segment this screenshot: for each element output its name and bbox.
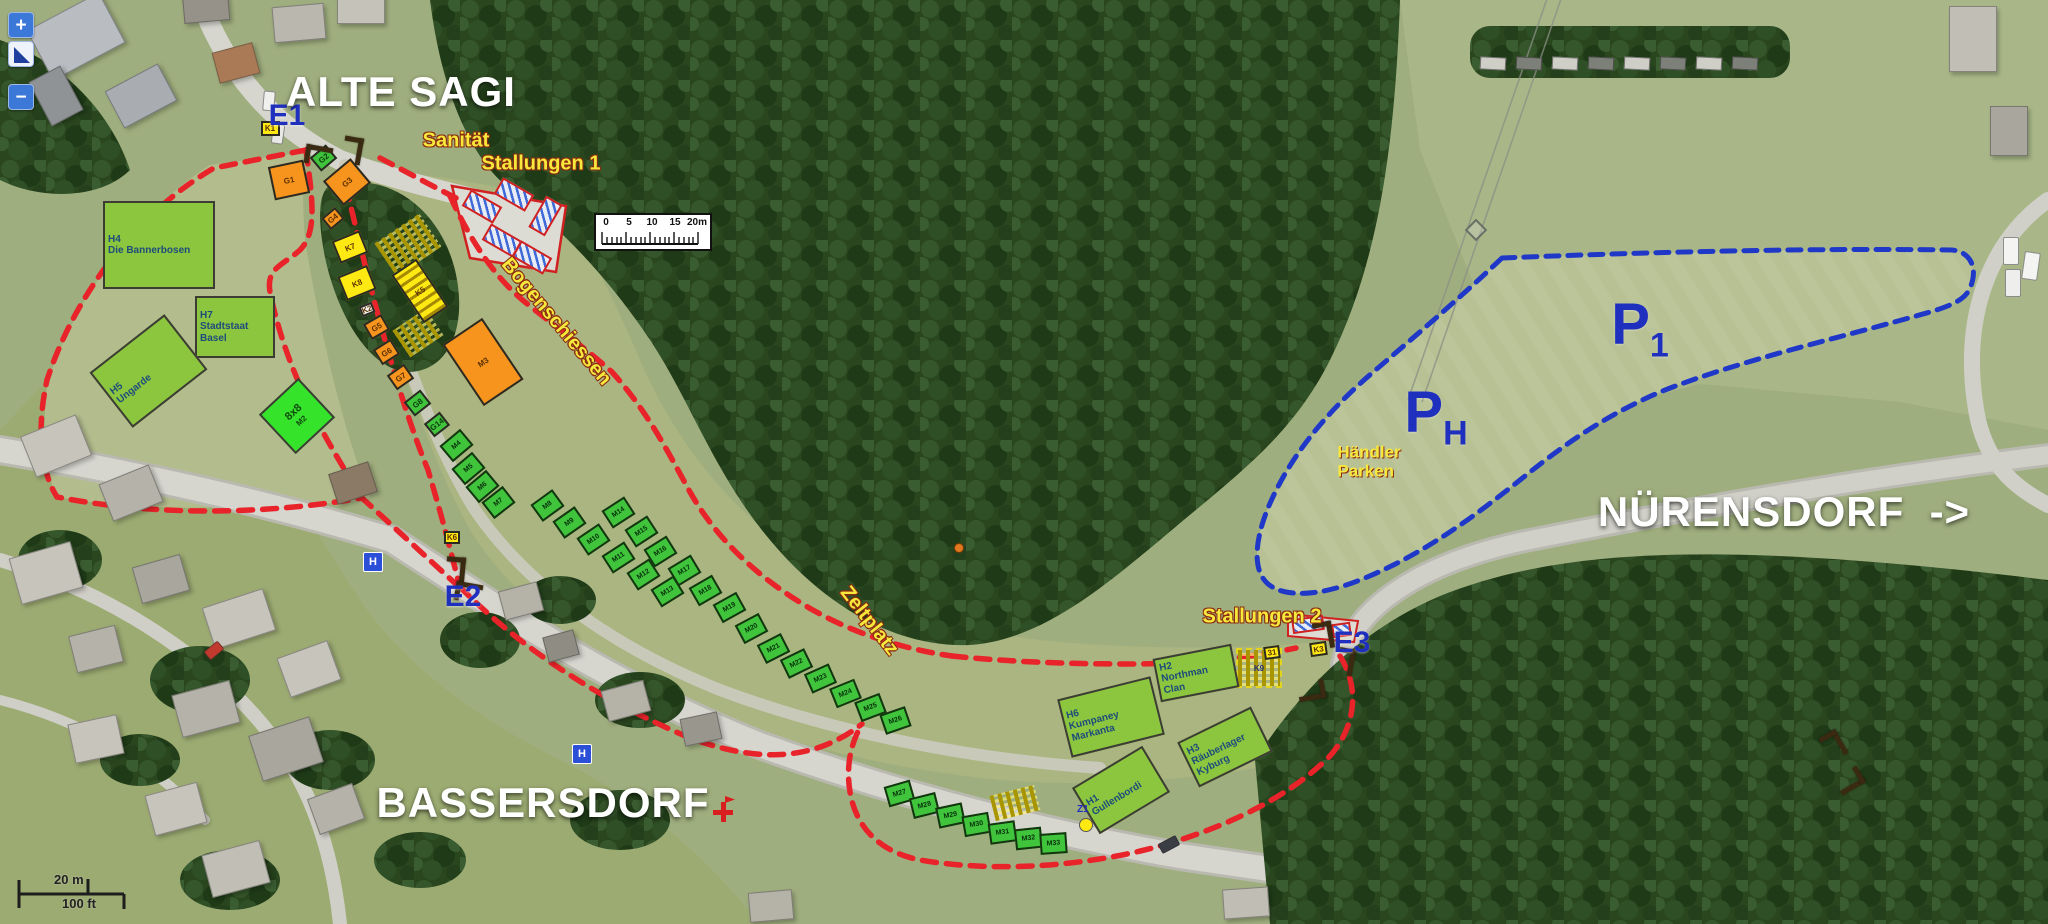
market-stall-label: M19 [721,601,736,614]
building [171,680,240,738]
market-stall-label: M13 [659,584,674,597]
entrance-barrier-icon [1819,729,1849,762]
scale-tick-label: 5 [626,217,632,228]
bus-stop-icon: H [572,744,592,764]
place-label-n-rensdorf-: NÜRENSDORF -> [1598,488,1970,536]
building [248,716,324,781]
building [182,0,231,24]
stand-label: K8 [351,277,364,289]
stand-G5: G5 [362,314,389,340]
entrance-label-e2: E2 [445,580,482,614]
building [276,640,341,698]
market-stall-label: M24 [837,687,852,699]
bus-stop-icon: H [363,552,383,572]
market-stall-label: M5 [462,462,474,474]
building [328,461,378,504]
market-stall-label: M7 [492,496,504,508]
power-pylon [1465,219,1488,242]
stand-M3: M3 [442,318,523,406]
car [2021,251,2041,281]
stand-label: K6 [447,533,457,542]
market-stall-M11: M11 [601,541,635,573]
stand-label: G7 [393,370,407,383]
map-canvas[interactable]: K9K1G1G2G3G4K7K8K2G5G6G7G8G14K5M3K631K3M… [0,0,2048,924]
parking-label-p1: P1 [1611,291,1669,366]
market-stall-label: M18 [697,584,712,597]
stand-K5: K5 [391,259,448,324]
scale-tick-label: 20m [687,217,707,228]
market-stall-label: M33 [1046,839,1060,847]
pan-extent-icon [14,47,30,63]
market-stall-label: M8 [541,499,553,510]
market-stall-M33: M33 [1039,832,1067,855]
stand-label: 31 [1267,647,1277,657]
market-stall-M29: M29 [935,802,966,828]
stand-label: K2 [361,303,374,315]
building [201,840,270,898]
market-stall-label: M32 [1021,834,1035,842]
stand-label: K5 [413,284,427,297]
market-stall-label: M17 [676,563,691,576]
stand-G4: G4 [321,206,344,229]
scale-bar-ruler [600,230,706,248]
building [20,414,92,477]
camp-name: Stadtstaat Basel [200,321,270,344]
zoom-out-button[interactable]: − [8,84,34,110]
building [144,782,207,837]
building [132,554,191,604]
building [542,629,580,662]
red-cross-marker [713,802,733,822]
camp-id: H7 [200,310,213,322]
stand-G14: G14 [424,411,450,437]
site-label-sanität: Sanität [423,130,490,153]
building [9,541,84,605]
market-stall-label: M29 [943,810,958,820]
stand-label: G6 [379,345,393,358]
stable-box [528,196,562,237]
market-stall-label: M31 [995,828,1009,837]
building [28,65,83,126]
stand-label: G5 [369,320,383,333]
bench-label: K9 [1254,664,1264,673]
market-stall-label: M11 [611,550,626,563]
building [105,63,178,128]
pan-extent-button[interactable] [8,41,34,67]
stand-label: G8 [410,396,424,410]
stand-label: M3 [476,355,490,369]
camp-H2: H2Northman Clan [1153,644,1240,702]
market-stall-M31: M31 [987,820,1017,845]
market-stall-label: M23 [812,672,827,684]
building [601,680,652,722]
stand-label: G4 [326,211,340,225]
building [67,714,124,764]
building [202,588,276,650]
site-label-stallungen-2: Stallungen 2 [1203,606,1322,629]
z-marker [1079,818,1093,832]
building [212,42,261,84]
entrance-barrier-icon [1833,766,1866,796]
camp-name: Die Bannerbosen [108,245,190,257]
site-label-stallungen-1: Stallungen 1 [482,153,601,176]
market-stall-M20: M20 [734,612,768,643]
stand-31: 31 [1263,644,1281,659]
building [748,889,794,923]
building [272,3,327,43]
scale-tick-label: 0 [603,217,609,228]
camp-H3: H3Räuberlager Kyburg [1177,707,1273,788]
camp-id: H4 [108,234,121,246]
stand-label: K7 [344,241,357,253]
horse-trailer [1480,56,1507,70]
market-stall-M30: M30 [961,811,991,836]
stand-G1: G1 [268,160,310,201]
market-stall-label: M20 [743,622,758,635]
z-marker-label: Z1 [1077,804,1089,815]
map-zoom-control: + − [8,12,34,110]
camp-name: Kumpaney Markanta [1068,701,1157,744]
market-stall-label: M30 [969,819,984,828]
scale-imperial-label: 100 ft [62,896,96,911]
stand-K8: K8 [337,265,376,301]
plan-overlay: K9K1G1G2G3G4K7K8K2G5G6G7G8G14K5M3K631K3M… [0,0,2048,924]
horse-trailer [1552,56,1579,70]
market-stall-label: M25 [862,701,877,712]
market-stall-label: M15 [633,524,648,537]
camp-H6: H6Kumpaney Markanta [1057,676,1165,757]
entrance-barrier-icon [1297,679,1327,702]
building [1222,886,1270,919]
building [498,581,544,620]
building [1949,6,1997,72]
camp-H5: H5Ungarde [89,314,207,428]
market-stall-label: M16 [652,544,667,557]
car [1158,834,1181,853]
building [337,0,385,24]
haendler-parken-label: Händler Parken [1337,443,1400,480]
parking-label-subscript: 1 [1650,326,1669,364]
place-label-bassersdorf: BASSERSDORF [376,779,709,827]
horse-trailer [1732,56,1759,70]
stand-G8: G8 [403,389,431,416]
market-stall-label: M10 [585,532,600,545]
entrance-barrier-icon [341,136,364,166]
market-stall-M14: M14 [601,496,635,528]
car [2003,237,2019,265]
horse-trailer [1696,56,1723,70]
market-stall-M32: M32 [1013,826,1042,850]
market-stall-label: M6 [476,480,488,492]
market-stall-label: M14 [610,505,625,518]
entrance-barrier-icon [304,144,334,167]
market-stall-label: M12 [635,567,650,580]
market-stall-label: M9 [563,516,575,527]
camp-name: Räuberlager Kyburg [1190,726,1265,778]
market-stall-label: M27 [891,788,906,798]
zoom-in-button[interactable]: + [8,12,34,38]
stand-G6: G6 [372,339,399,365]
market-stall-label: M4 [450,439,462,451]
market-stall-M10: M10 [576,523,610,556]
stand-G7: G7 [386,364,414,391]
horse-trailer [1588,56,1615,70]
camp-H4: H4Die Bannerbosen [103,201,215,289]
camp-H7: H7Stadtstaat Basel [195,296,275,358]
stand-K7: K7 [332,230,369,263]
stand-label: G1 [283,174,295,185]
scale-tick-label: 10 [646,217,657,228]
stand-K2: K2 [358,301,375,316]
building [1990,106,2028,156]
building [680,711,723,746]
stand-K6: K6 [444,531,460,544]
horse-trailer [1660,56,1687,70]
market-stall-label: M28 [917,800,932,810]
market-stall-label: M21 [765,642,780,654]
stand-label: G14 [428,416,445,432]
building [307,783,365,835]
market-stall-M19: M19 [712,591,746,622]
camp-8x8: 8x8M2 [259,378,335,454]
scale-metric-label: 20 m [54,872,84,887]
horse-trailer [1624,56,1651,70]
scale-bar-numbers: 0 5 10 15 20m [596,217,710,229]
car [2005,269,2021,297]
site-label-zeltplatz: Zeltplatz [835,582,903,660]
building [98,464,163,521]
horse-trailer [1516,56,1543,70]
market-stall-label: M26 [887,714,902,725]
place-label-alte-sagi: ALTE SAGI [286,68,516,116]
scale-tick-label: 15 [669,217,680,228]
scale-line: 20 m 100 ft [16,870,156,916]
parking-label-subscript: H [1443,414,1468,452]
building [68,625,124,673]
stand-label: G3 [340,175,354,189]
market-stall-label: M22 [788,657,803,669]
entrance-label-e3: E3 [1334,626,1371,660]
waypoint-dot [954,543,964,553]
building [26,0,125,80]
bench-rows [990,785,1041,821]
scale-bar-box: 0 5 10 15 20m [594,213,712,251]
parking-label-ph: PH [1404,379,1467,454]
